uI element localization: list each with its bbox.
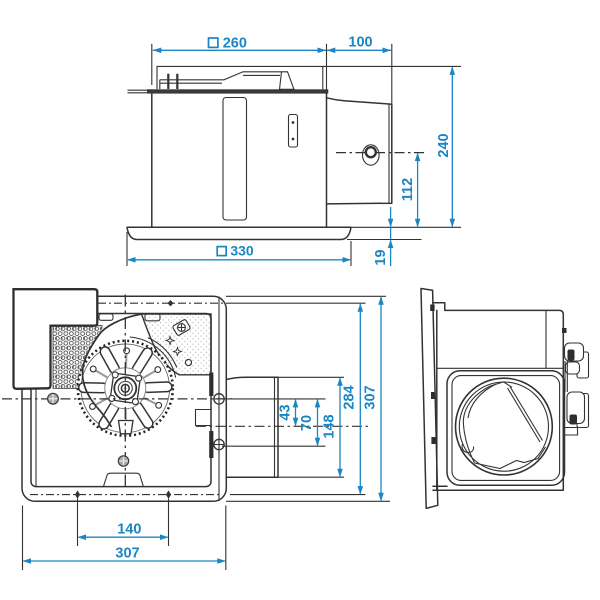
svg-text:240: 240 — [436, 133, 452, 157]
svg-text:19: 19 — [373, 249, 389, 265]
svg-text:100: 100 — [348, 35, 372, 51]
svg-text:307: 307 — [363, 385, 379, 409]
svg-text:70: 70 — [299, 415, 315, 431]
svg-text:112: 112 — [400, 178, 416, 201]
svg-text:260: 260 — [223, 35, 247, 51]
svg-text:43: 43 — [277, 404, 293, 420]
svg-text:307: 307 — [115, 545, 139, 561]
svg-text:140: 140 — [117, 522, 141, 538]
svg-text:284: 284 — [342, 385, 358, 409]
svg-text:330: 330 — [230, 242, 254, 258]
svg-text:148: 148 — [321, 414, 337, 438]
